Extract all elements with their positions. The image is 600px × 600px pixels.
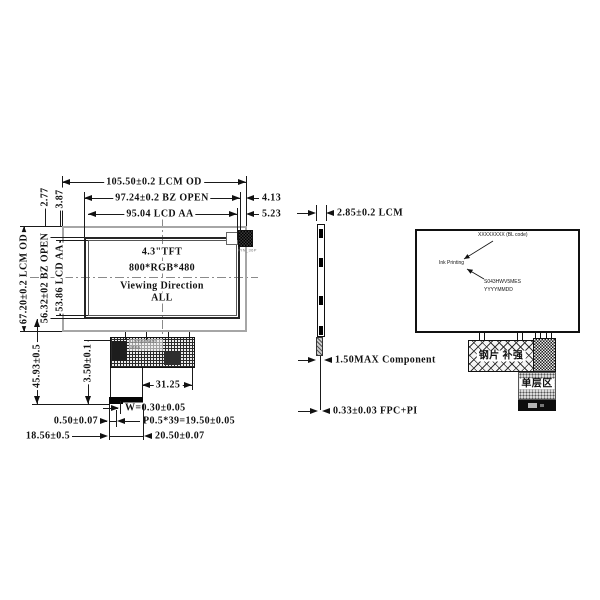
- side-fpc-line: [320, 356, 321, 410]
- tick-line: [189, 332, 190, 340]
- connector-contact: [528, 403, 537, 408]
- ext-line: [240, 192, 241, 233]
- ink-printing-label: Ink Printing: [438, 260, 465, 266]
- arrowhead: [88, 211, 96, 217]
- dim-module-total-height: 45.93±0.5: [32, 342, 43, 390]
- dim-line: [109, 436, 144, 437]
- panel-resolution-label: 800*RGB*480: [127, 263, 197, 274]
- dim-lcm-width: 105.50±0.2 LCM OD: [104, 177, 204, 188]
- dim-line: [109, 421, 116, 422]
- steel-dense-area: [533, 338, 556, 372]
- tick-line: [146, 332, 147, 340]
- arrowhead: [100, 418, 108, 424]
- connector-label: PIN_36P: [238, 248, 257, 253]
- ext-line: [32, 404, 109, 405]
- ext-line: [192, 368, 193, 390]
- dim-bezel-top-offset: 2.77: [40, 185, 51, 208]
- arrowhead: [246, 195, 254, 201]
- ext-line: [84, 340, 110, 341]
- bl-code-label: XXXXXXXX (BL code): [477, 232, 529, 238]
- leader-line: [298, 411, 310, 412]
- dim-finger-offset: 0.50±0.07: [52, 416, 100, 427]
- arrowhead: [326, 210, 334, 216]
- arrowhead: [308, 357, 316, 363]
- dim-bezel-width: 97.24±0.2 BZ OPEN: [113, 193, 210, 204]
- arrowhead: [324, 357, 332, 363]
- arrowhead: [142, 382, 150, 388]
- leader-line: [298, 360, 308, 361]
- arrowhead: [246, 211, 254, 217]
- arrowhead: [34, 396, 40, 404]
- dim-bezel-height: 56.32±02 BZ OPEN: [40, 231, 51, 326]
- ext-line: [316, 205, 317, 221]
- side-bar-mark: [319, 229, 323, 238]
- dim-activearea-height: 53.86 LCD AA: [55, 242, 66, 313]
- component-right-part: [164, 352, 180, 365]
- viewing-direction-label: Viewing Direction: [118, 281, 206, 292]
- golden-finger-connector: [518, 400, 556, 411]
- dim-activearea-right-offset: 5.23: [260, 209, 283, 220]
- arrowhead: [100, 433, 108, 439]
- side-bar-mark: [319, 326, 323, 335]
- dim-component-width: 31.25: [154, 380, 183, 391]
- dim-bezel-right-offset: 4.13: [260, 193, 283, 204]
- arrowhead: [310, 408, 318, 414]
- dim-side-component-thickness: 1.50MAX Component: [333, 355, 438, 366]
- dim-side-fpc-thickness: 0.33±0.03 FPC+PI: [331, 406, 420, 417]
- lcd-module-drawing: PIN_36P 4.3"TFT 800*RGB*480 Viewing Dire…: [0, 0, 600, 600]
- steel-reinforcement-label: 钢片 补强: [477, 351, 526, 362]
- connector-contact: [540, 404, 544, 407]
- arrowhead: [308, 210, 316, 216]
- ext-line: [246, 176, 247, 226]
- model-code-label: S043HWV5MES: [483, 279, 522, 285]
- arrowhead: [85, 396, 91, 404]
- leader-line: [72, 436, 100, 437]
- dim-activearea-width: 95.04 LCD AA: [124, 209, 195, 220]
- viewing-all-label: ALL: [149, 293, 175, 304]
- panel-size-label: 4.3"TFT: [140, 247, 184, 258]
- side-profile-bar: [317, 224, 325, 337]
- dim-fpc-length: 3.50±0.1: [83, 342, 94, 385]
- leader-line: [254, 214, 259, 215]
- ext-line: [237, 208, 238, 240]
- leader-line: [125, 421, 140, 422]
- dim-lcm-height: 67.20±0.2 LCM OD: [19, 232, 30, 326]
- dim-finger-width: W=0.30±0.05: [123, 403, 188, 414]
- dim-fpc-width: 20.50±0.07: [153, 431, 207, 442]
- dim-side-lcm-thickness: 2.85±0.2 LCM: [335, 208, 405, 219]
- leader-line: [297, 213, 308, 214]
- ext-line: [120, 401, 121, 414]
- arrowhead: [34, 319, 40, 327]
- single-layer-label: 单层区: [519, 379, 554, 390]
- side-bar-mark: [319, 258, 323, 267]
- arrowhead: [229, 211, 237, 217]
- arrowhead: [62, 179, 70, 185]
- component-area-label: Component area: [129, 339, 163, 351]
- tick-line: [125, 332, 126, 340]
- arrowhead: [117, 418, 125, 424]
- side-hatch-segment: [316, 337, 323, 356]
- arrowhead: [238, 179, 246, 185]
- tick-line: [168, 332, 169, 340]
- ext-line: [109, 404, 110, 440]
- arrowhead: [322, 408, 330, 414]
- arrowhead: [84, 195, 92, 201]
- arrowhead: [144, 433, 152, 439]
- side-bar-mark: [319, 296, 323, 305]
- fpc-neck-left: [110, 368, 111, 397]
- leader-line: [254, 198, 259, 199]
- component-left-part: [112, 341, 127, 361]
- arrowhead: [184, 382, 192, 388]
- date-code-label: YYYYMMDD: [483, 287, 514, 293]
- arrowhead: [111, 405, 119, 411]
- dim-pin-pitch: P0.5*39=19.50±0.05: [141, 416, 237, 427]
- dim-activearea-top-offset: 3.87: [55, 187, 66, 210]
- arrowhead: [232, 195, 240, 201]
- dim-fpc-bottom-offset: 18.56±0.5: [24, 431, 72, 442]
